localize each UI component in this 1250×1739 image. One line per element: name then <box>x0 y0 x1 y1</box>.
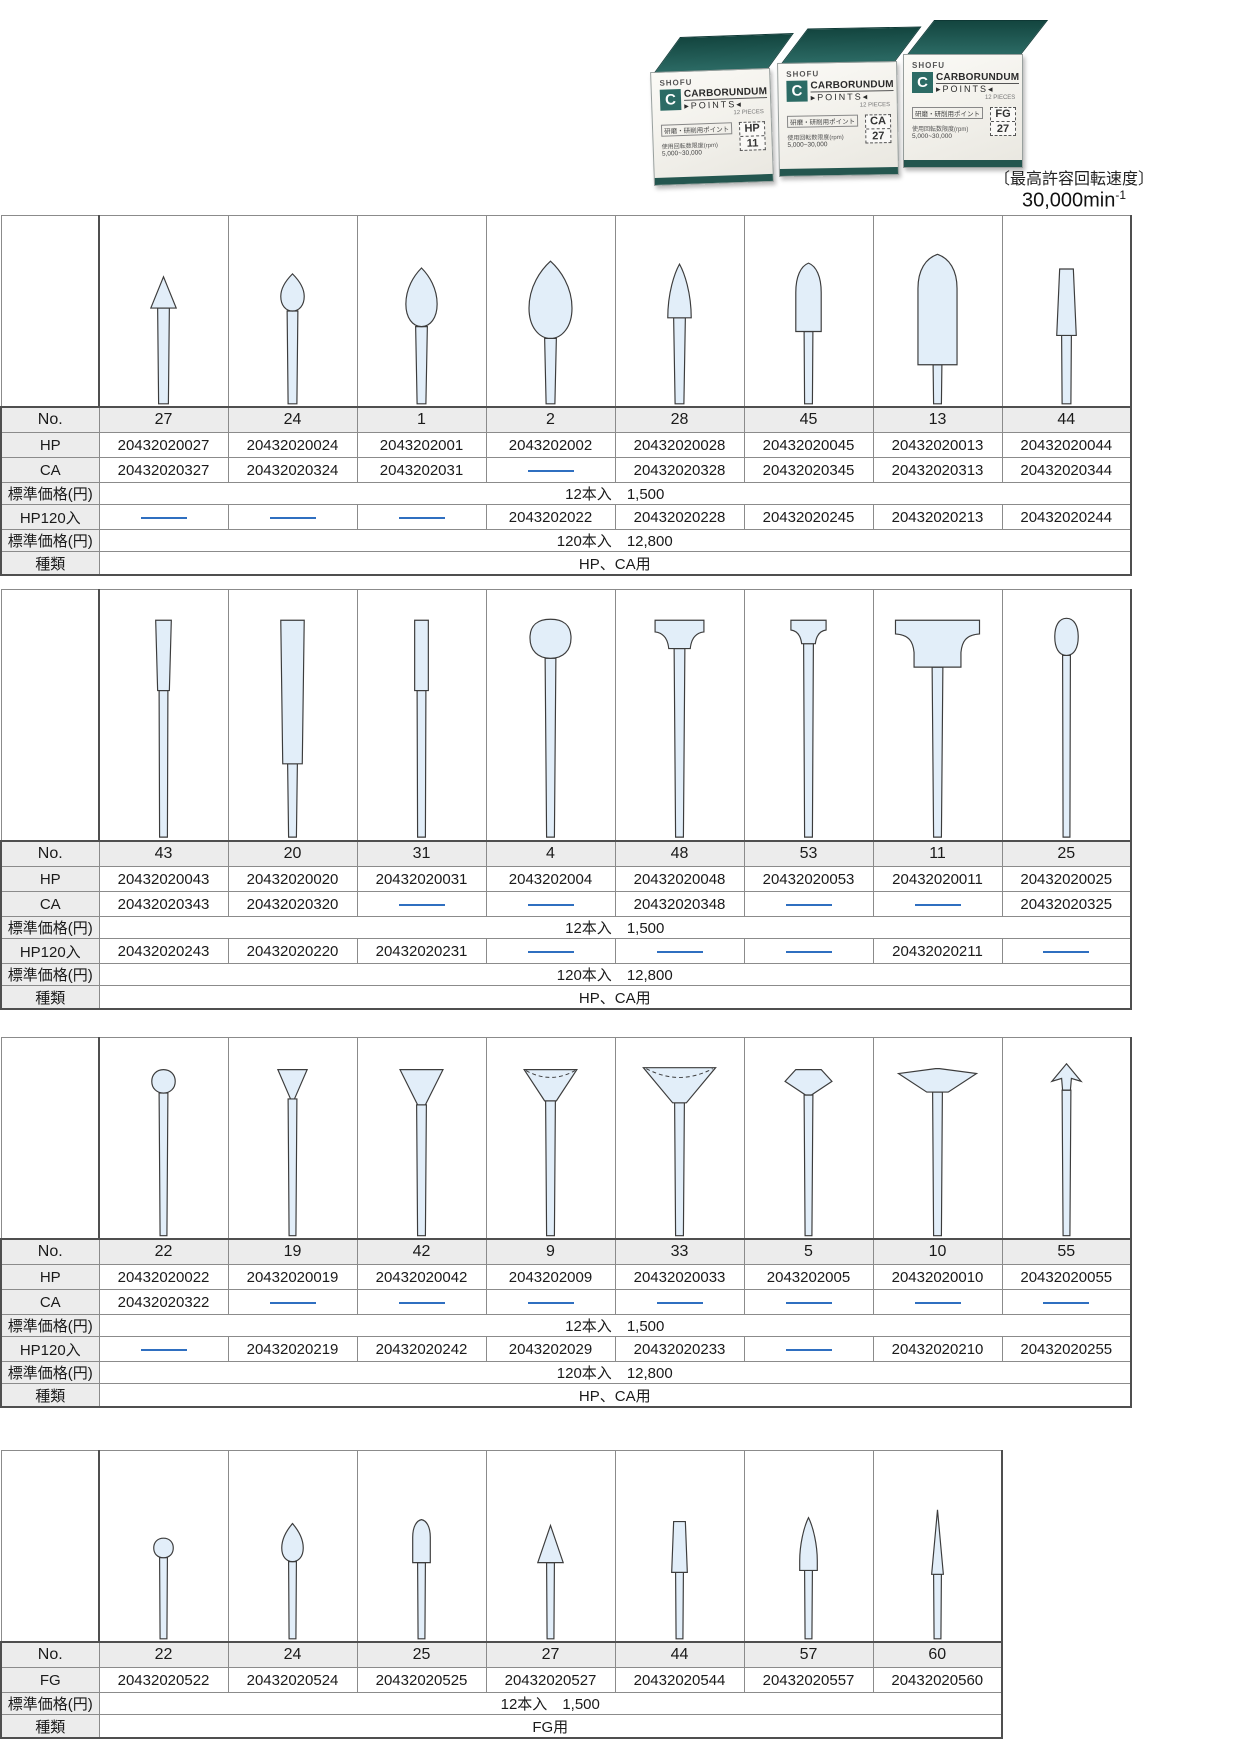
no-code-cell <box>486 1290 615 1315</box>
product-code: 20432020022 <box>99 1265 228 1290</box>
spec-tables: No.27241228451344HP204320200272043202002… <box>0 215 1250 1739</box>
product-code: 20432020220 <box>228 939 357 964</box>
hp-code-row: HP20432020022204320200192043202004220432… <box>1 1265 1131 1290</box>
no-code-cell <box>357 1290 486 1315</box>
point-number: 4 <box>486 841 615 867</box>
product-code: 20432020560 <box>873 1668 1002 1693</box>
point-number: 22 <box>99 1642 228 1668</box>
no-code-cell <box>873 892 1002 917</box>
dash-placeholder <box>657 951 703 953</box>
no-code-cell <box>744 939 873 964</box>
hp120-code-row: HP120入2043202021920432020242204320202920… <box>1 1337 1131 1362</box>
price-cell: 120本入12,800 <box>99 964 1131 986</box>
product-code: 20432020327 <box>99 458 228 483</box>
shape-cell <box>1002 1038 1131 1240</box>
row-label-no: No. <box>1 841 99 867</box>
product-code: 2043202022 <box>486 505 615 530</box>
point-number: 5 <box>744 1239 873 1265</box>
point-shape-taper-mini <box>745 1451 872 1641</box>
product-code: 20432020228 <box>615 505 744 530</box>
row-label-ca: CA <box>1 1290 99 1315</box>
row-label-price: 標準価格(円) <box>1 1693 99 1715</box>
product-code: 2043202031 <box>357 458 486 483</box>
shape-cell <box>615 1038 744 1240</box>
point-shape-bud <box>358 216 485 406</box>
product-code: 20432020044 <box>1002 433 1131 458</box>
product-code: 20432020024 <box>228 433 357 458</box>
box-front-face: SHOFU C CARBORUNDUM ▸POINTS◂ 12 PIECES 研… <box>903 54 1023 168</box>
product-code: 20432020320 <box>228 892 357 917</box>
product-code: 20432020328 <box>615 458 744 483</box>
product-subname: ▸POINTS◂ <box>936 84 1019 95</box>
point-number: 24 <box>228 407 357 433</box>
box-bottom-strip <box>904 160 1022 167</box>
product-code: 20432020345 <box>744 458 873 483</box>
product-code: 20432020211 <box>873 939 1002 964</box>
row-label-hp120: HP120入 <box>1 939 99 964</box>
point-shape-cup <box>487 1038 614 1238</box>
row-label-price: 標準価格(円) <box>1 483 99 505</box>
shape-cell <box>615 1451 744 1643</box>
box-front-face: SHOFU C CARBORUNDUM ▸POINTS◂ 12 PIECES 研… <box>777 61 899 177</box>
shape-cell <box>228 1038 357 1240</box>
point-shape-gem <box>745 1038 872 1238</box>
price-cell: 12本入1,500 <box>99 917 1131 939</box>
dash-placeholder <box>270 1302 316 1304</box>
point-number: 43 <box>99 841 228 867</box>
point-shape-bullet-mini <box>358 1451 485 1641</box>
point-number: 25 <box>1002 841 1131 867</box>
dash-placeholder <box>915 1302 961 1304</box>
point-shape-t-head-small <box>745 590 872 840</box>
spec-table-3: No.22194293351055HP204320200222043202001… <box>0 1037 1132 1408</box>
point-number: 57 <box>744 1642 873 1668</box>
shape-cell <box>744 1038 873 1240</box>
shape-cell <box>228 1451 357 1643</box>
dash-placeholder <box>786 1302 832 1304</box>
product-code: 20432020233 <box>615 1337 744 1362</box>
point-shape-barrel <box>487 590 614 840</box>
dash-placeholder <box>399 904 445 906</box>
dash-placeholder <box>141 1349 187 1351</box>
row-label-kind: 種類 <box>1 1715 99 1739</box>
row-label-fg: FG <box>1 1668 99 1693</box>
point-shape-cone-mini <box>487 1451 614 1641</box>
no-code-cell <box>486 939 615 964</box>
spec-table-2: No.432031448531125HP20432020043204320200… <box>0 589 1132 1010</box>
kind-cell: FG用 <box>99 1715 1002 1739</box>
shape-cell <box>1002 216 1131 408</box>
row-label-ca: CA <box>1 892 99 917</box>
number-row: No.22194293351055 <box>1 1239 1131 1265</box>
point-shape-cup-wide <box>616 1038 743 1238</box>
dash-placeholder <box>1043 1302 1089 1304</box>
row-label-ca: CA <box>1 458 99 483</box>
spec-table-4: No.22242527445760FG204320205222043202052… <box>0 1450 1003 1739</box>
point-number: 44 <box>1002 407 1131 433</box>
shape-cell <box>357 216 486 408</box>
point-number: 44 <box>615 1642 744 1668</box>
number-row: No.432031448531125 <box>1 841 1131 867</box>
shape-cell <box>615 590 744 842</box>
row-label-kind: 種類 <box>1 552 99 576</box>
point-number: 25 <box>357 1642 486 1668</box>
shape-row <box>1 1038 1131 1240</box>
dash-placeholder <box>528 951 574 953</box>
dash-placeholder <box>399 1302 445 1304</box>
jp-use-label: 研磨・研削用ポイント <box>661 122 732 136</box>
shape-row <box>1 590 1131 842</box>
shape-cell <box>99 1451 228 1643</box>
shape-cell <box>486 590 615 842</box>
no-code-cell <box>486 458 615 483</box>
point-shape-t-head-wide <box>874 590 1001 840</box>
shape-cell <box>357 590 486 842</box>
shape-cell <box>357 1451 486 1643</box>
pieces-text: 12 PIECES <box>936 95 1015 101</box>
price-cell: 12本入1,500 <box>99 1315 1131 1337</box>
shape-cell <box>873 1451 1002 1643</box>
hp-code-row: HP20432020027204320200242043202001204320… <box>1 433 1131 458</box>
kind-row: 種類HP、CA用 <box>1 552 1131 576</box>
row-label-kind: 種類 <box>1 1384 99 1408</box>
price-row: 標準価格(円)120本入12,800 <box>1 530 1131 552</box>
no-code-cell <box>357 892 486 917</box>
row-label-hp120: HP120入 <box>1 505 99 530</box>
point-shape-taper-short <box>100 590 227 840</box>
point-shape-ball-mini <box>100 1451 227 1641</box>
product-code: 20432020031 <box>357 867 486 892</box>
shape-cell <box>873 216 1002 408</box>
product-code: 20432020344 <box>1002 458 1131 483</box>
point-number: 42 <box>357 1239 486 1265</box>
max-speed-value: 30,000min-1 <box>994 189 1154 213</box>
product-code: 20432020213 <box>873 505 1002 530</box>
dash-placeholder <box>657 1302 703 1304</box>
product-code: 20432020325 <box>1002 892 1131 917</box>
no-code-cell <box>1002 1290 1131 1315</box>
no-code-cell <box>873 1290 1002 1315</box>
point-shape-needle-mini <box>874 1451 1001 1641</box>
row-label-price: 標準価格(円) <box>1 917 99 939</box>
shape-cell <box>486 1451 615 1643</box>
product-code: 20432020348 <box>615 892 744 917</box>
type-label: HP 11 <box>739 121 766 151</box>
point-number: 24 <box>228 1642 357 1668</box>
row-label-kind: 種類 <box>1 986 99 1010</box>
product-code: 2043202005 <box>744 1265 873 1290</box>
brand-text: SHOFU <box>912 61 1022 70</box>
product-code: 20432020033 <box>615 1265 744 1290</box>
no-code-cell <box>744 1337 873 1362</box>
shape-cell <box>228 590 357 842</box>
point-number: 22 <box>99 1239 228 1265</box>
point-shape-tapered-cylinder <box>1003 216 1130 406</box>
fg-code-row: FG20432020522204320205242043202052520432… <box>1 1668 1002 1693</box>
dash-placeholder <box>786 951 832 953</box>
point-shape-flame-mini <box>229 1451 356 1641</box>
spec-table-1: No.27241228451344HP204320200272043202002… <box>0 215 1132 576</box>
c-logo: C <box>660 89 682 111</box>
point-number: 60 <box>873 1642 1002 1668</box>
dash-placeholder <box>786 1349 832 1351</box>
point-shape-egg <box>1003 590 1130 840</box>
point-shape-taper-long <box>229 590 356 840</box>
dash-placeholder <box>528 1302 574 1304</box>
c-logo: C <box>786 81 807 102</box>
no-code-cell <box>357 505 486 530</box>
product-code: 20432020322 <box>99 1290 228 1315</box>
jp-use-label: 研磨・研削用ポイント <box>787 115 858 128</box>
no-code-cell <box>228 505 357 530</box>
product-code: 20432020027 <box>99 433 228 458</box>
product-photo-area: SHOFU C CARBORUNDUM ▸POINTS◂ 12 PIECES 研… <box>0 0 1250 215</box>
point-shape-cylinder-mini <box>616 1451 743 1641</box>
product-code: 20432020210 <box>873 1337 1002 1362</box>
ca-code-row: CA20432020343204320203202043202034820432… <box>1 892 1131 917</box>
shape-cell <box>486 1038 615 1240</box>
no-code-cell <box>1002 939 1131 964</box>
box-bottom-strip <box>780 167 898 176</box>
point-number: 31 <box>357 841 486 867</box>
price-cell: 12本入1,500 <box>99 1693 1002 1715</box>
jp-use-label: 研磨・研削用ポイント <box>912 107 983 119</box>
point-shape-spear <box>1003 1038 1130 1238</box>
box-bottom-strip <box>655 174 773 185</box>
price-row: 標準価格(円)12本入1,500 <box>1 917 1131 939</box>
no-code-cell <box>486 892 615 917</box>
product-code: 20432020043 <box>99 867 228 892</box>
price-cell: 120本入12,800 <box>99 1362 1131 1384</box>
hp120-code-row: HP120入2043202022204320202282043202024520… <box>1 505 1131 530</box>
product-code: 20432020013 <box>873 433 1002 458</box>
dash-placeholder <box>1043 951 1089 953</box>
point-shape-flame <box>616 216 743 406</box>
type-label: CA 27 <box>865 114 892 143</box>
max-speed-caption: 〔最高許容回転速度〕 30,000min-1 <box>994 171 1154 213</box>
kind-row: 種類FG用 <box>1 1715 1002 1739</box>
product-code: 20432020557 <box>744 1668 873 1693</box>
shape-cell <box>744 590 873 842</box>
product-code: 20432020524 <box>228 1668 357 1693</box>
corner-blank <box>1 1451 99 1643</box>
row-label-no: No. <box>1 1642 99 1668</box>
product-code: 20432020010 <box>873 1265 1002 1290</box>
price-row: 標準価格(円)12本入1,500 <box>1 483 1131 505</box>
product-code: 2043202029 <box>486 1337 615 1362</box>
point-shape-inverted-cone <box>358 1038 485 1238</box>
shape-row <box>1 216 1131 408</box>
no-code-cell <box>228 1290 357 1315</box>
product-code: 20432020011 <box>873 867 1002 892</box>
product-code: 20432020231 <box>357 939 486 964</box>
point-number: 20 <box>228 841 357 867</box>
product-code: 20432020219 <box>228 1337 357 1362</box>
shape-cell <box>744 216 873 408</box>
box-top-face <box>780 27 921 65</box>
product-code: 20432020042 <box>357 1265 486 1290</box>
product-code: 20432020028 <box>615 433 744 458</box>
row-label-price: 標準価格(円) <box>1 964 99 986</box>
product-code: 20432020053 <box>744 867 873 892</box>
product-code: 20432020525 <box>357 1668 486 1693</box>
row-label-no: No. <box>1 407 99 433</box>
number-row: No.22242527445760 <box>1 1642 1002 1668</box>
product-code: 20432020242 <box>357 1337 486 1362</box>
dash-placeholder <box>915 904 961 906</box>
kind-cell: HP、CA用 <box>99 552 1131 576</box>
dash-placeholder <box>528 470 574 472</box>
product-code: 20432020522 <box>99 1668 228 1693</box>
point-number: 13 <box>873 407 1002 433</box>
product-code: 20432020527 <box>486 1668 615 1693</box>
point-number: 10 <box>873 1239 1002 1265</box>
corner-blank <box>1 590 99 842</box>
product-code: 2043202009 <box>486 1265 615 1290</box>
product-code: 2043202002 <box>486 433 615 458</box>
row-label-no: No. <box>1 1239 99 1265</box>
no-code-cell <box>615 1290 744 1315</box>
product-code: 2043202004 <box>486 867 615 892</box>
product-code: 20432020244 <box>1002 505 1131 530</box>
kind-row: 種類HP、CA用 <box>1 1384 1131 1408</box>
dash-placeholder <box>786 904 832 906</box>
shape-cell <box>357 1038 486 1240</box>
point-shape-disc <box>874 1038 1001 1238</box>
product-code: 20432020055 <box>1002 1265 1131 1290</box>
box-top-face <box>906 20 1048 56</box>
price-row: 標準価格(円)12本入1,500 <box>1 1693 1002 1715</box>
point-number: 19 <box>228 1239 357 1265</box>
no-code-cell <box>99 505 228 530</box>
product-code: 20432020045 <box>744 433 873 458</box>
dash-placeholder <box>270 517 316 519</box>
product-code: 20432020544 <box>615 1668 744 1693</box>
product-box-hp: SHOFU C CARBORUNDUM ▸POINTS◂ 12 PIECES 研… <box>650 68 772 184</box>
point-number: 33 <box>615 1239 744 1265</box>
box-top-face <box>653 33 794 74</box>
product-code: 20432020245 <box>744 505 873 530</box>
price-row: 標準価格(円)120本入12,800 <box>1 964 1131 986</box>
box-front-face: SHOFU C CARBORUNDUM ▸POINTS◂ 12 PIECES 研… <box>650 68 774 186</box>
point-number: 27 <box>99 407 228 433</box>
product-code: 20432020025 <box>1002 867 1131 892</box>
product-code: 20432020019 <box>228 1265 357 1290</box>
point-shape-cylinder-small <box>358 590 485 840</box>
hp120-code-row: HP120入2043202024320432020220204320202312… <box>1 939 1131 964</box>
dash-placeholder <box>399 517 445 519</box>
shape-cell <box>228 216 357 408</box>
point-number: 48 <box>615 841 744 867</box>
price-cell: 12本入1,500 <box>99 483 1131 505</box>
dash-placeholder <box>141 517 187 519</box>
price-cell: 120本入12,800 <box>99 530 1131 552</box>
point-shape-bullet-large <box>874 216 1001 406</box>
shape-cell <box>873 1038 1002 1240</box>
no-code-cell <box>744 1290 873 1315</box>
point-number: 53 <box>744 841 873 867</box>
point-number: 45 <box>744 407 873 433</box>
point-shape-flame-small <box>229 216 356 406</box>
row-label-hp: HP <box>1 867 99 892</box>
shape-cell <box>99 590 228 842</box>
type-label: FG 27 <box>990 107 1016 136</box>
row-label-hp120: HP120入 <box>1 1337 99 1362</box>
row-label-price: 標準価格(円) <box>1 1315 99 1337</box>
point-number: 11 <box>873 841 1002 867</box>
product-box-fg: SHOFU C CARBORUNDUM ▸POINTS◂ 12 PIECES 研… <box>903 54 1021 166</box>
product-code: 20432020255 <box>1002 1337 1131 1362</box>
product-code: 2043202001 <box>357 433 486 458</box>
shape-cell <box>1002 590 1131 842</box>
ca-code-row: CA20432020322 <box>1 1290 1131 1315</box>
point-shape-inverted-cone-small <box>229 1038 356 1238</box>
product-code: 20432020313 <box>873 458 1002 483</box>
product-code: 20432020020 <box>228 867 357 892</box>
price-row: 標準価格(円)12本入1,500 <box>1 1315 1131 1337</box>
product-box-ca: SHOFU C CARBORUNDUM ▸POINTS◂ 12 PIECES 研… <box>777 61 897 175</box>
point-shape-ball <box>100 1038 227 1238</box>
point-number: 55 <box>1002 1239 1131 1265</box>
shape-cell <box>486 216 615 408</box>
shape-row <box>1 1451 1002 1643</box>
point-number: 28 <box>615 407 744 433</box>
hp-code-row: HP20432020043204320200202043202003120432… <box>1 867 1131 892</box>
corner-blank <box>1 1038 99 1240</box>
product-code: 20432020243 <box>99 939 228 964</box>
shape-cell <box>744 1451 873 1643</box>
shape-cell <box>99 216 228 408</box>
point-number: 27 <box>486 1642 615 1668</box>
dash-placeholder <box>528 904 574 906</box>
point-shape-t-head <box>616 590 743 840</box>
point-number: 1 <box>357 407 486 433</box>
price-row: 標準価格(円)120本入12,800 <box>1 1362 1131 1384</box>
row-label-hp: HP <box>1 1265 99 1290</box>
c-logo: C <box>912 72 933 93</box>
no-code-cell <box>615 939 744 964</box>
no-code-cell <box>744 892 873 917</box>
row-label-price: 標準価格(円) <box>1 1362 99 1384</box>
point-shape-bud-large <box>487 216 614 406</box>
max-speed-label: 〔最高許容回転速度〕 <box>994 171 1154 189</box>
product-code: 20432020343 <box>99 892 228 917</box>
point-shape-bullet <box>745 216 872 406</box>
shape-cell <box>873 590 1002 842</box>
shape-cell <box>615 216 744 408</box>
point-number: 2 <box>486 407 615 433</box>
product-code: 20432020324 <box>228 458 357 483</box>
number-row: No.27241228451344 <box>1 407 1131 433</box>
product-name: CARBORUNDUM <box>936 72 1019 84</box>
kind-row: 種類HP、CA用 <box>1 986 1131 1010</box>
row-label-price: 標準価格(円) <box>1 530 99 552</box>
point-shape-cone <box>100 216 227 406</box>
kind-cell: HP、CA用 <box>99 986 1131 1010</box>
ca-code-row: CA20432020327204320203242043202031204320… <box>1 458 1131 483</box>
corner-blank <box>1 216 99 408</box>
no-code-cell <box>99 1337 228 1362</box>
product-code: 20432020048 <box>615 867 744 892</box>
kind-cell: HP、CA用 <box>99 1384 1131 1408</box>
brand-text: SHOFU <box>786 68 896 79</box>
point-number: 9 <box>486 1239 615 1265</box>
shape-cell <box>99 1038 228 1240</box>
row-label-hp: HP <box>1 433 99 458</box>
